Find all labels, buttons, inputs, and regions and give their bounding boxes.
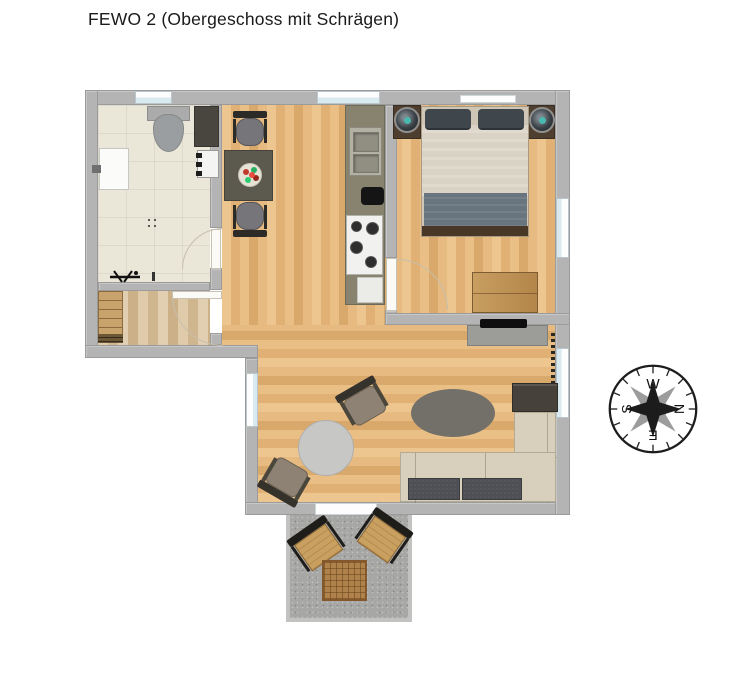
compass-label-south: S bbox=[619, 404, 635, 413]
towel-radiator-icon bbox=[197, 150, 219, 178]
bathroom-window bbox=[135, 91, 172, 104]
wall-bath-kitchen-b bbox=[210, 268, 222, 290]
coat-hooks-icon bbox=[108, 268, 142, 285]
terrace-table bbox=[322, 560, 367, 601]
stove-icon bbox=[346, 215, 383, 275]
kitchen-cabinet bbox=[357, 277, 383, 303]
shower-drain-icon bbox=[146, 217, 158, 227]
washbasin-faucet-icon bbox=[92, 165, 101, 173]
tv-icon bbox=[480, 319, 527, 328]
plan-title: FEWO 2 (Obergeschoss mit Schrägen) bbox=[88, 9, 399, 30]
fruit-bowl-icon bbox=[238, 163, 262, 187]
bedroom-window bbox=[556, 198, 569, 258]
bath-fixture-mark bbox=[152, 272, 155, 281]
sink-basin-2 bbox=[353, 154, 379, 173]
oval-rug bbox=[411, 389, 495, 437]
burner-icon bbox=[366, 222, 379, 235]
wall-left bbox=[85, 90, 98, 358]
shower-cabinet bbox=[194, 106, 219, 147]
sink-basin-1 bbox=[353, 132, 379, 152]
wall-bedroom-living bbox=[385, 313, 570, 325]
compass-rose: W N E S bbox=[606, 362, 700, 456]
dining-chair-bottom bbox=[233, 200, 267, 237]
burner-icon bbox=[351, 221, 362, 232]
bedroom-door-leaf bbox=[386, 258, 397, 311]
corner-shelf bbox=[512, 383, 558, 412]
compass-label-west: W bbox=[646, 376, 660, 392]
wall-hall-bottom bbox=[85, 345, 258, 358]
outside-mask bbox=[85, 358, 245, 515]
washbasin-icon bbox=[99, 148, 129, 190]
wall-right bbox=[555, 90, 570, 515]
bedroom-skylight bbox=[460, 95, 516, 103]
balcony-door bbox=[315, 503, 377, 515]
living-window-left bbox=[246, 373, 258, 427]
burner-icon bbox=[365, 256, 377, 268]
tv-sideboard bbox=[467, 325, 548, 346]
compass-label-north: N bbox=[671, 404, 687, 414]
bedroom-dresser bbox=[472, 272, 538, 313]
compass-label-east: E bbox=[648, 427, 657, 443]
floorplan-canvas: FEWO 2 (Obergeschoss mit Schrägen) bbox=[0, 0, 756, 675]
double-bed bbox=[421, 106, 529, 237]
bedside-lamp-right-icon bbox=[529, 107, 555, 133]
burner-icon bbox=[350, 241, 363, 254]
bedside-lamp-left-icon bbox=[394, 107, 420, 133]
sofa-base bbox=[400, 452, 556, 502]
staircase-lower-treads bbox=[98, 334, 123, 343]
dining-chair-top bbox=[233, 111, 267, 148]
kitchen-window bbox=[317, 91, 380, 104]
counter-appliance bbox=[361, 187, 384, 205]
